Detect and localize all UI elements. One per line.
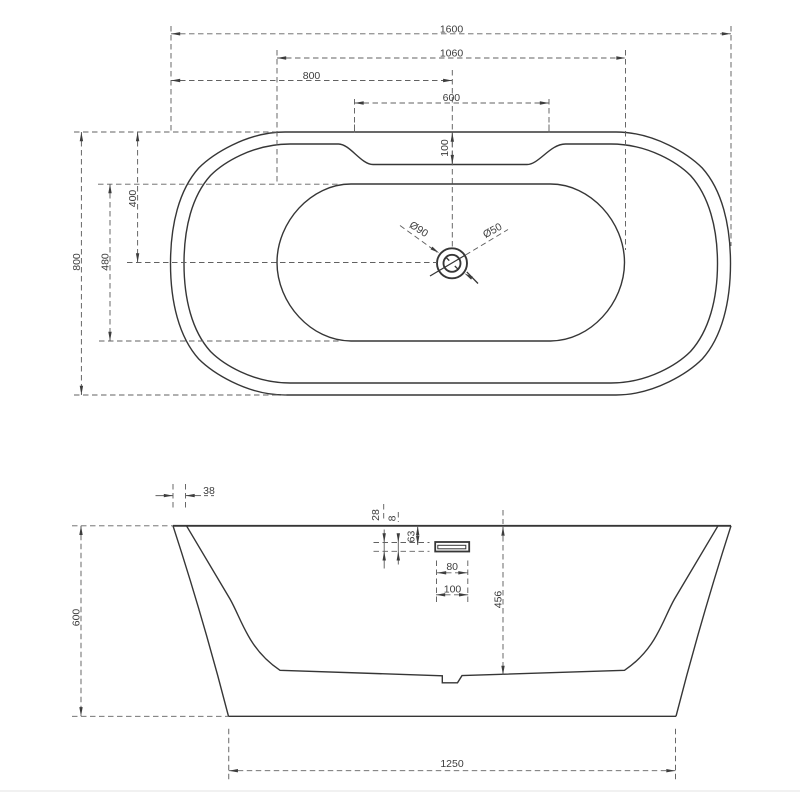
svg-text:80: 80 [446, 561, 458, 573]
svg-text:100: 100 [439, 139, 451, 157]
svg-text:800: 800 [303, 70, 321, 82]
svg-text:8: 8 [387, 515, 399, 521]
svg-text:600: 600 [70, 609, 82, 627]
svg-text:28: 28 [370, 509, 382, 521]
svg-text:1060: 1060 [440, 48, 464, 60]
svg-text:1250: 1250 [440, 758, 464, 770]
svg-text:Ø50: Ø50 [481, 221, 504, 241]
svg-text:400: 400 [127, 190, 139, 208]
svg-text:456: 456 [492, 591, 504, 609]
svg-text:800: 800 [71, 253, 83, 271]
svg-text:63: 63 [405, 531, 417, 543]
svg-text:480: 480 [99, 253, 111, 271]
svg-text:600: 600 [443, 92, 461, 104]
svg-text:38: 38 [203, 485, 215, 497]
svg-text:1600: 1600 [440, 24, 464, 36]
svg-text:100: 100 [444, 584, 462, 596]
svg-text:Ø90: Ø90 [407, 219, 430, 240]
